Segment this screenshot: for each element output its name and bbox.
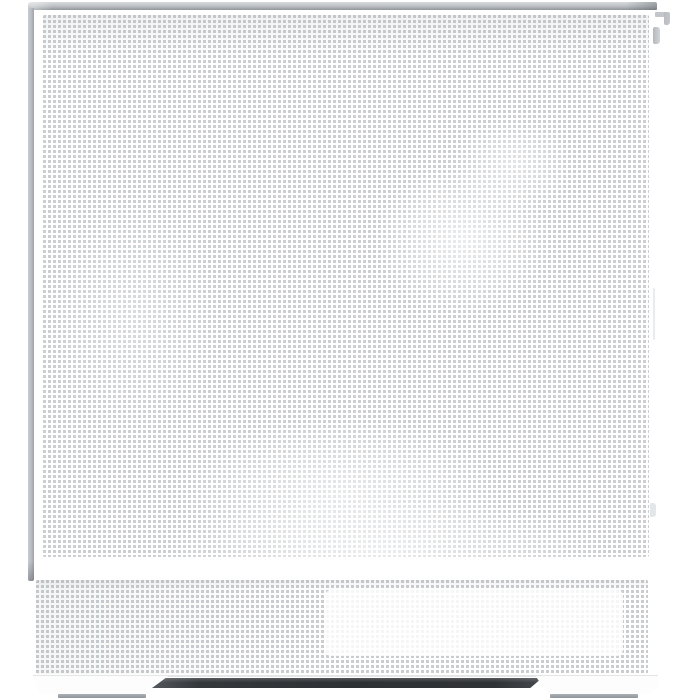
mesh-reflection-highlights (43, 15, 649, 557)
side-panel-tab (653, 27, 660, 44)
right-foot-rubber-pad (550, 694, 638, 698)
front-mesh-panel (43, 15, 649, 557)
right-edge-seam (653, 288, 655, 340)
rear-latch-bracket-vertical (664, 12, 670, 25)
bottom-mesh-vent-strip (36, 580, 648, 674)
product-photo-canvas (0, 0, 700, 700)
case-top-rail (28, 2, 657, 10)
right-side-latch-notch (650, 503, 656, 517)
recessed-vent-plate (325, 590, 623, 656)
right-foot (533, 676, 658, 694)
left-foot-rubber-pad (58, 694, 146, 698)
left-foot (33, 676, 168, 694)
under-case-shadow (152, 678, 542, 688)
left-frame-edge (28, 8, 34, 581)
rear-latch-bracket (655, 11, 672, 26)
